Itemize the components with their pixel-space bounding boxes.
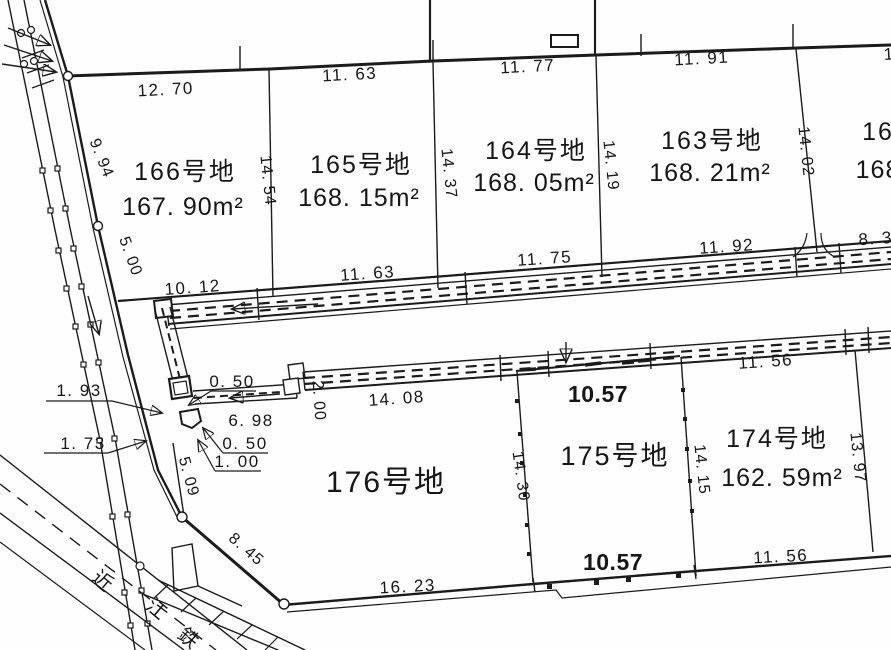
building-annex xyxy=(551,35,578,47)
dimension-label: 16. 23 xyxy=(379,576,436,598)
dimension-label: 1. 93 xyxy=(56,381,101,400)
dimension-label: 8. 45 xyxy=(225,530,267,569)
dimension-label: 13 xyxy=(883,44,891,64)
dimension-label: 1. 73 xyxy=(60,434,105,453)
survey-point xyxy=(279,599,289,609)
dimension-label: 11. 75 xyxy=(517,247,573,270)
dimension-label: 2. 00 xyxy=(309,380,329,422)
parcel-label-166: 166号地 xyxy=(134,158,236,186)
dimension-label: 0. 50 xyxy=(209,372,254,391)
width-annotation: 10.57 xyxy=(568,381,628,407)
railway-name-char: 江 xyxy=(141,594,171,624)
parcel-label-162-partial: 16 xyxy=(862,118,891,146)
dimension-label: 14. 19 xyxy=(599,140,621,192)
dimension-label: 5. 09 xyxy=(175,455,202,499)
dimension-label: 12. 70 xyxy=(137,79,194,101)
road-direction-arrow xyxy=(88,296,99,334)
parcel-label-163: 163号地 xyxy=(661,127,763,155)
parcel-area-174: 162. 59m² xyxy=(721,464,843,492)
dimension-label: 14. 15 xyxy=(690,444,712,496)
dimension-label: 11. 91 xyxy=(674,48,730,70)
dimension-label: 11. 63 xyxy=(322,64,378,86)
channel-outlet xyxy=(180,409,201,428)
dimension-label: 14. 54 xyxy=(256,155,278,207)
dimension-label: 13. 97 xyxy=(846,432,868,484)
parcel-area-164: 168. 05m² xyxy=(473,169,595,197)
survey-point xyxy=(177,512,187,522)
boundary-point-arrow xyxy=(4,45,52,61)
upper-waterway xyxy=(118,241,891,329)
dimension-label: 11. 56 xyxy=(753,546,809,568)
dimension-label: 14. 37 xyxy=(437,148,459,200)
dimension-label: 14. 08 xyxy=(368,387,425,410)
dimension-label: 6. 98 xyxy=(228,411,273,430)
width-annotation: 10.57 xyxy=(583,549,643,575)
dimension-label: 1. 00 xyxy=(214,452,259,471)
dimension-label: 14. 02 xyxy=(794,126,816,178)
dimension-label: 5. 00 xyxy=(115,234,145,278)
parcel-label-165: 165号地 xyxy=(310,151,412,179)
dimension-label: 0. 50 xyxy=(222,434,267,453)
parcel-label-176: 176号地 xyxy=(326,466,446,499)
parcel-area-165: 168. 15m² xyxy=(298,184,420,212)
dimension-label: 8. 3 xyxy=(858,228,891,249)
dimension-label: 11. 56 xyxy=(738,350,794,373)
parcel-label-174: 174号地 xyxy=(726,425,828,453)
dimension-label: 11. 77 xyxy=(500,56,556,78)
width-annotations: 10.57 10.57 xyxy=(568,381,643,575)
survey-point xyxy=(94,222,103,231)
railway-name: 近 江 鉄 道 xyxy=(87,566,232,650)
parcel-area-163: 168. 21m² xyxy=(649,159,771,187)
side-channel xyxy=(155,307,201,428)
parcel-label-175: 175号地 xyxy=(560,441,669,471)
upper-parcel-boundaries xyxy=(64,0,891,297)
parcel-area-162-partial: 168 xyxy=(856,156,891,184)
cadastral-survey-map: 12. 70 11. 63 11. 77 11. 91 13 14. 54 14… xyxy=(0,0,891,650)
dimension-label: 14. 30 xyxy=(509,450,533,502)
dimension-label: 11. 92 xyxy=(699,235,755,258)
dimension-label: 10. 12 xyxy=(164,276,221,299)
parcel-label-164: 164号地 xyxy=(485,137,587,165)
survey-point xyxy=(64,72,73,81)
channel-step xyxy=(288,363,305,380)
parcel-area-166: 167. 90m² xyxy=(122,193,244,221)
dimension-label: 9. 94 xyxy=(86,136,117,180)
survey-drawing: 12. 70 11. 63 11. 77 11. 91 13 14. 54 14… xyxy=(0,0,891,650)
channel-step xyxy=(283,378,300,395)
dimension-label: 11. 63 xyxy=(340,262,396,285)
